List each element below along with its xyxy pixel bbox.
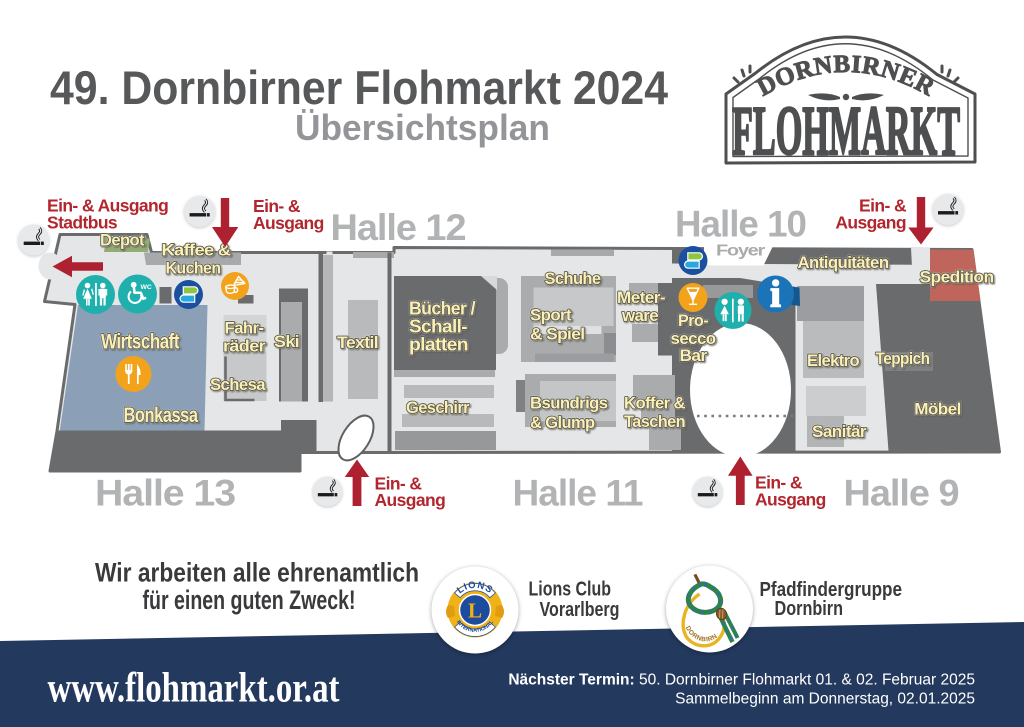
- svg-text:Koffer &: Koffer &: [624, 394, 685, 413]
- svg-text:& Glump: & Glump: [530, 413, 595, 432]
- svg-text:Bsundrigs: Bsundrigs: [530, 394, 608, 413]
- svg-text:Meter-: Meter-: [617, 288, 665, 307]
- svg-text:Sammelbeginn am Donnerstag, 02: Sammelbeginn am Donnerstag, 02.01.2025: [675, 691, 975, 708]
- svg-text:ware: ware: [621, 306, 658, 325]
- svg-text:Halle 9: Halle 9: [844, 473, 959, 514]
- svg-text:Bar: Bar: [680, 346, 708, 365]
- svg-text:Antiquitäten: Antiquitäten: [798, 253, 889, 272]
- svg-text:Vorarlberg: Vorarlberg: [540, 599, 620, 621]
- svg-text:i: i: [770, 274, 781, 316]
- svg-text:Taschen: Taschen: [624, 412, 685, 431]
- svg-text:Halle 13: Halle 13: [95, 473, 235, 514]
- svg-text:www.flohmarkt.or.at: www.flohmarkt.or.at: [48, 666, 340, 712]
- svg-text:Pro-: Pro-: [678, 311, 708, 330]
- svg-text:WC: WC: [141, 284, 152, 291]
- svg-text:Schesa: Schesa: [210, 375, 266, 394]
- svg-text:Geschirr: Geschirr: [406, 398, 470, 417]
- svg-text:Elektro: Elektro: [807, 351, 859, 370]
- svg-text:Stadtbus: Stadtbus: [47, 213, 118, 233]
- svg-text:platten: platten: [409, 334, 468, 355]
- svg-text:Textil: Textil: [337, 333, 378, 352]
- svg-text:Ski: Ski: [274, 332, 299, 351]
- svg-text:& Spiel: & Spiel: [530, 325, 585, 344]
- svg-text:Kuchen: Kuchen: [166, 259, 221, 278]
- svg-text:Halle 12: Halle 12: [331, 207, 466, 248]
- svg-text:Ausgang: Ausgang: [375, 490, 446, 510]
- svg-text:räder: räder: [223, 337, 266, 356]
- svg-text:Fahr-: Fahr-: [225, 319, 264, 338]
- svg-text:Ausgang: Ausgang: [253, 213, 324, 233]
- svg-text:Spedition: Spedition: [920, 268, 994, 287]
- svg-text:Teppich: Teppich: [876, 349, 930, 368]
- svg-text:Foyer: Foyer: [716, 243, 765, 260]
- svg-text:Halle 11: Halle 11: [513, 473, 643, 514]
- svg-text:FLOHMARKT: FLOHMARKT: [732, 93, 960, 170]
- svg-text:Wirtschaft: Wirtschaft: [101, 331, 179, 354]
- svg-text:Dornbirn: Dornbirn: [775, 598, 844, 620]
- svg-text:Wir arbeiten alle ehrenamtlich: Wir arbeiten alle ehrenamtlich: [95, 558, 419, 588]
- svg-text:Depot: Depot: [100, 231, 145, 250]
- svg-text:Ausgang: Ausgang: [755, 490, 826, 510]
- svg-text:Sport: Sport: [530, 306, 572, 325]
- svg-text:für einen guten Zweck!: für einen guten Zweck!: [143, 585, 356, 615]
- svg-text:Bonkassa: Bonkassa: [124, 404, 199, 427]
- svg-text:Lions Club: Lions Club: [529, 579, 612, 601]
- svg-text:Möbel: Möbel: [914, 400, 961, 419]
- svg-text:Nächster Termin: 50. Dornbirne: Nächster Termin: 50. Dornbirner Flohmark…: [508, 672, 975, 689]
- svg-text:L: L: [468, 599, 482, 623]
- svg-text:Kaffee &: Kaffee &: [162, 241, 231, 260]
- svg-text:Ausgang: Ausgang: [835, 213, 906, 233]
- svg-text:Übersichtsplan: Übersichtsplan: [295, 107, 550, 148]
- svg-text:Sanitär: Sanitär: [812, 422, 867, 441]
- svg-text:Schuhe: Schuhe: [545, 269, 601, 288]
- svg-text:Halle 10: Halle 10: [675, 204, 806, 245]
